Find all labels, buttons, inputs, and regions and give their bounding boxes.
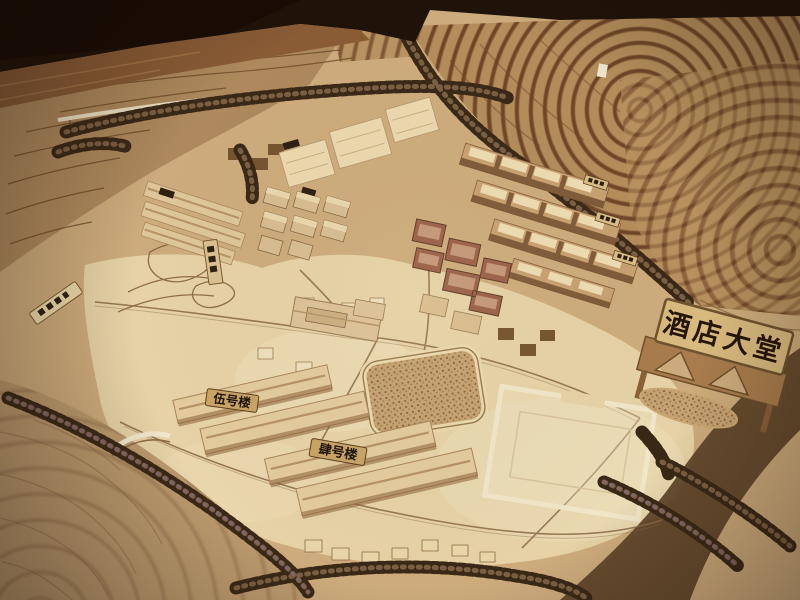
model-photo: 伍号楼 肆号楼 酒店大堂 (0, 0, 800, 600)
model-photo-canvas: 伍号楼 肆号楼 酒店大堂 (0, 0, 800, 600)
vignette-overlay (0, 0, 800, 600)
